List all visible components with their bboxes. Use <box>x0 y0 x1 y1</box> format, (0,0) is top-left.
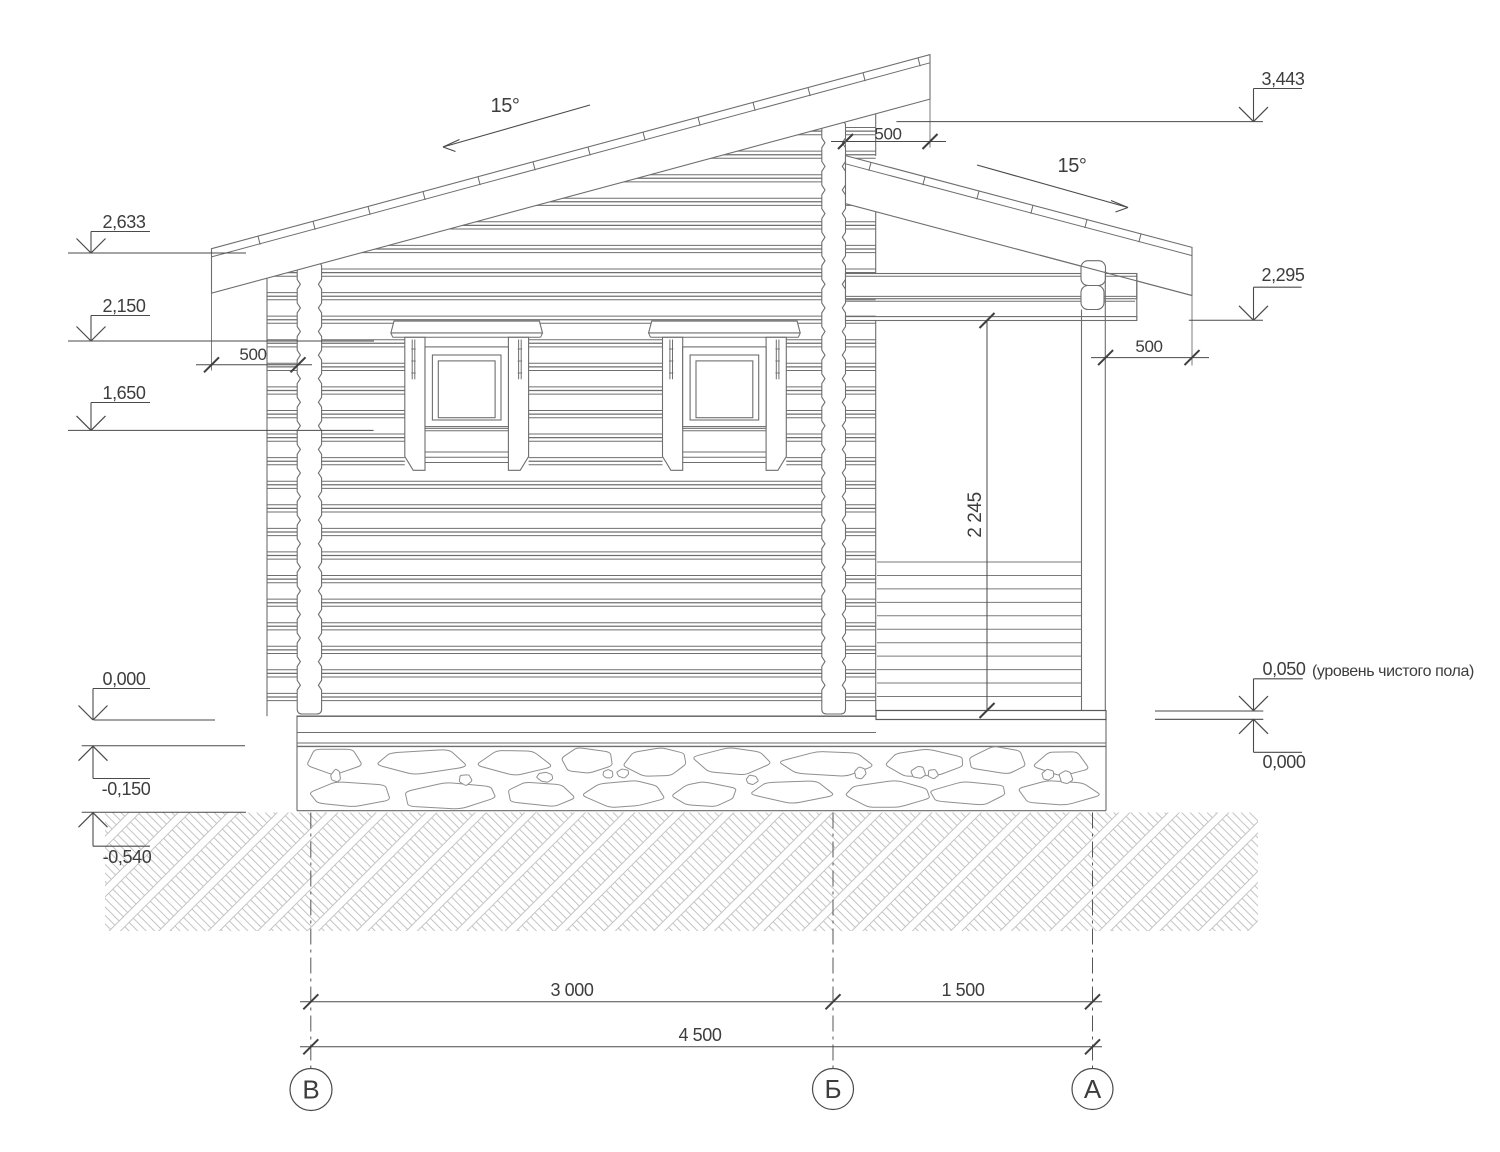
svg-text:1,650: 1,650 <box>102 383 145 403</box>
svg-text:4 500: 4 500 <box>678 1025 721 1045</box>
svg-text:1 500: 1 500 <box>941 980 984 1000</box>
svg-text:-0,540: -0,540 <box>103 847 152 867</box>
svg-text:500: 500 <box>874 125 901 144</box>
svg-text:Б: Б <box>824 1074 841 1104</box>
svg-text:(уровень чистого пола): (уровень чистого пола) <box>1312 663 1474 680</box>
svg-text:А: А <box>1084 1074 1102 1104</box>
svg-text:500: 500 <box>1135 337 1162 356</box>
svg-text:2 245: 2 245 <box>965 492 986 538</box>
svg-text:15°: 15° <box>1057 155 1086 177</box>
svg-text:0,000: 0,000 <box>1262 752 1305 772</box>
svg-text:15°: 15° <box>490 95 519 117</box>
svg-text:0,050: 0,050 <box>1262 659 1305 679</box>
svg-text:2,633: 2,633 <box>102 212 145 232</box>
svg-text:-0,150: -0,150 <box>102 779 151 799</box>
svg-text:3,443: 3,443 <box>1261 69 1304 89</box>
svg-text:В: В <box>302 1075 319 1105</box>
svg-text:2,295: 2,295 <box>1261 265 1304 285</box>
svg-text:500: 500 <box>239 345 266 364</box>
svg-text:3 000: 3 000 <box>550 980 593 1000</box>
svg-text:2,150: 2,150 <box>102 296 145 316</box>
svg-text:0,000: 0,000 <box>102 669 145 689</box>
